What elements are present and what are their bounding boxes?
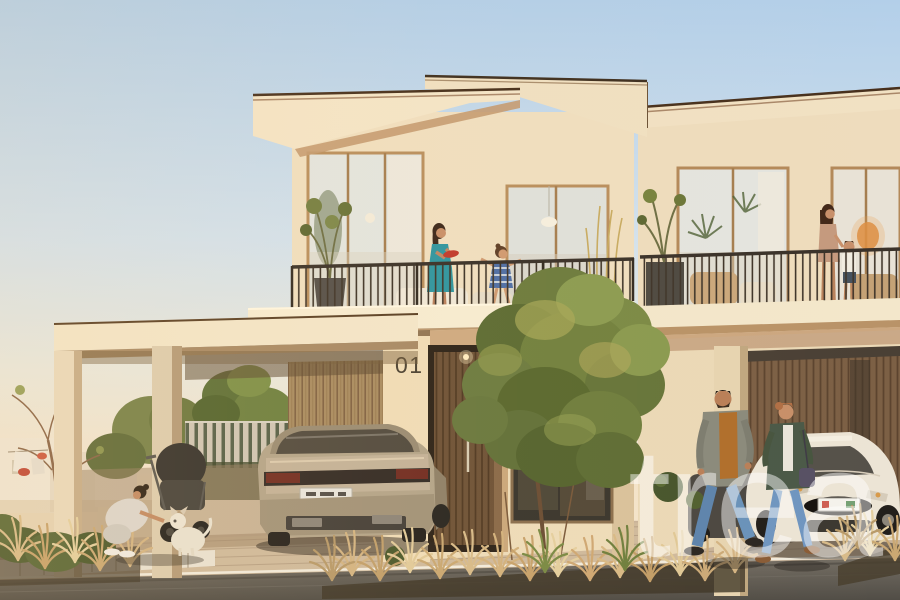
- watermark: trea: [628, 416, 884, 589]
- villa-render-photo: 01: [0, 0, 900, 600]
- scene-canvas: 01: [0, 0, 900, 600]
